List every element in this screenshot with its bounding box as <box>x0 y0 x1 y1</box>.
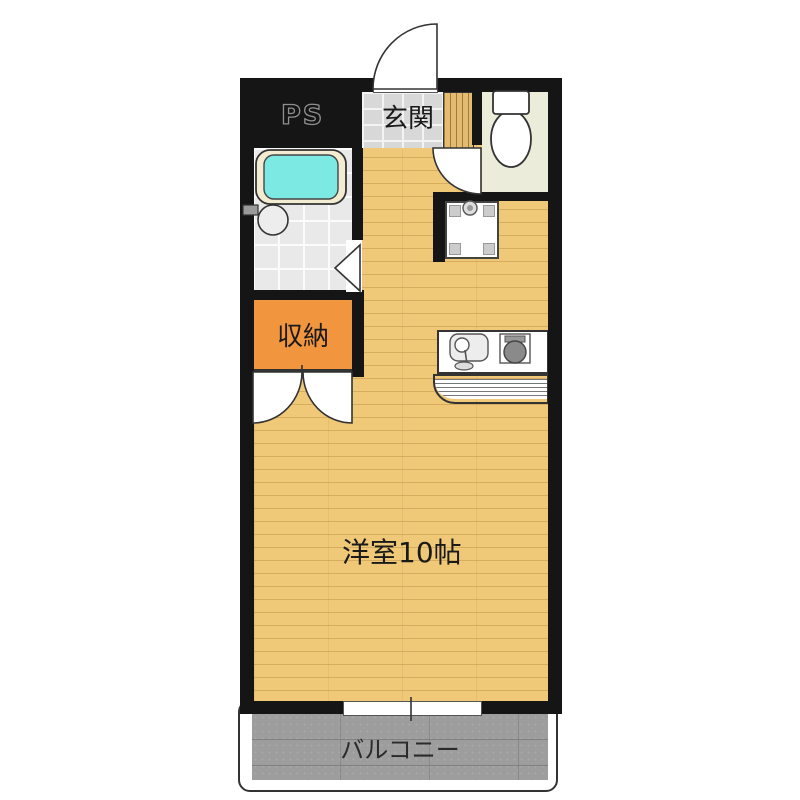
kitchen-faucet-icon <box>455 338 469 352</box>
washer-faucet-icon <box>467 205 473 211</box>
pipe-space-label: PS <box>281 100 324 131</box>
entry-door-swing <box>373 24 437 89</box>
kitchen-faucet-handle-icon <box>455 362 473 370</box>
western-room-label: 洋室10帖 <box>342 531 462 571</box>
closet-door-swing-left <box>253 372 302 423</box>
entrance-label: 玄関 <box>382 98 434 135</box>
stove-burner-icon <box>504 341 526 363</box>
closet-door-swing-right <box>303 372 352 423</box>
toilet-tank-icon <box>493 91 529 114</box>
bathtub-icon <box>264 155 338 199</box>
wash-basin-icon <box>258 205 288 235</box>
bathroom-door-marker-icon <box>335 245 360 291</box>
bath-faucet-icon <box>243 205 258 215</box>
floorplan-canvas: バルコニー 収納 <box>0 0 800 800</box>
toilet-bowl-icon <box>491 111 531 167</box>
toilet-door-swing <box>433 148 481 194</box>
